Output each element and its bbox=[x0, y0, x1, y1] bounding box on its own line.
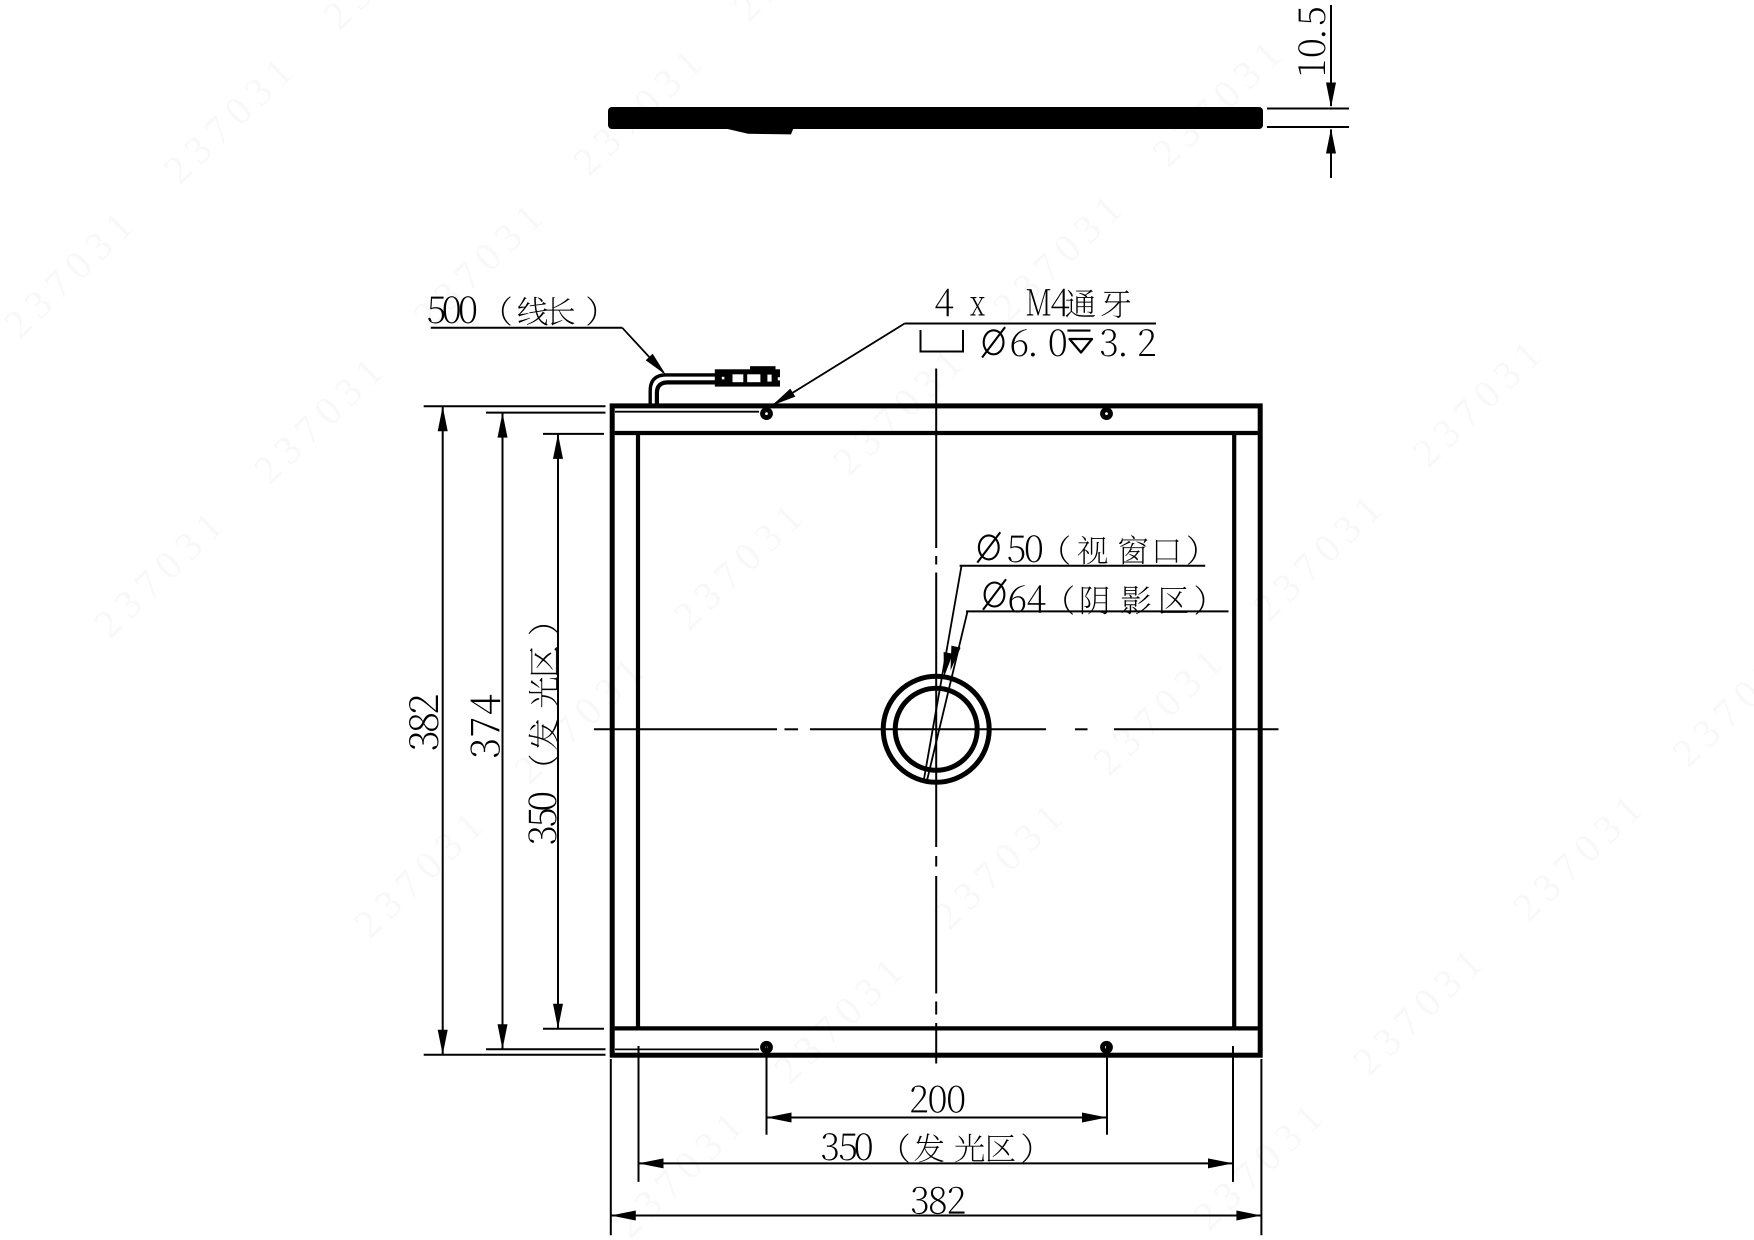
svg-text:237031 237031 237031 237: 237031 237031 237031 237031 237031 23703… bbox=[345, 26, 1296, 946]
svg-text:237031 237031 237031 237: 237031 237031 237031 237031 237031 23703… bbox=[1385, 1226, 1754, 1240]
svg-text:237031 237031 237031 237: 237031 237031 237031 237031 237031 23703… bbox=[865, 626, 1754, 1240]
svg-text:237031 237031 237031 237: 237031 237031 237031 237031 237031 23703… bbox=[605, 326, 1556, 1240]
